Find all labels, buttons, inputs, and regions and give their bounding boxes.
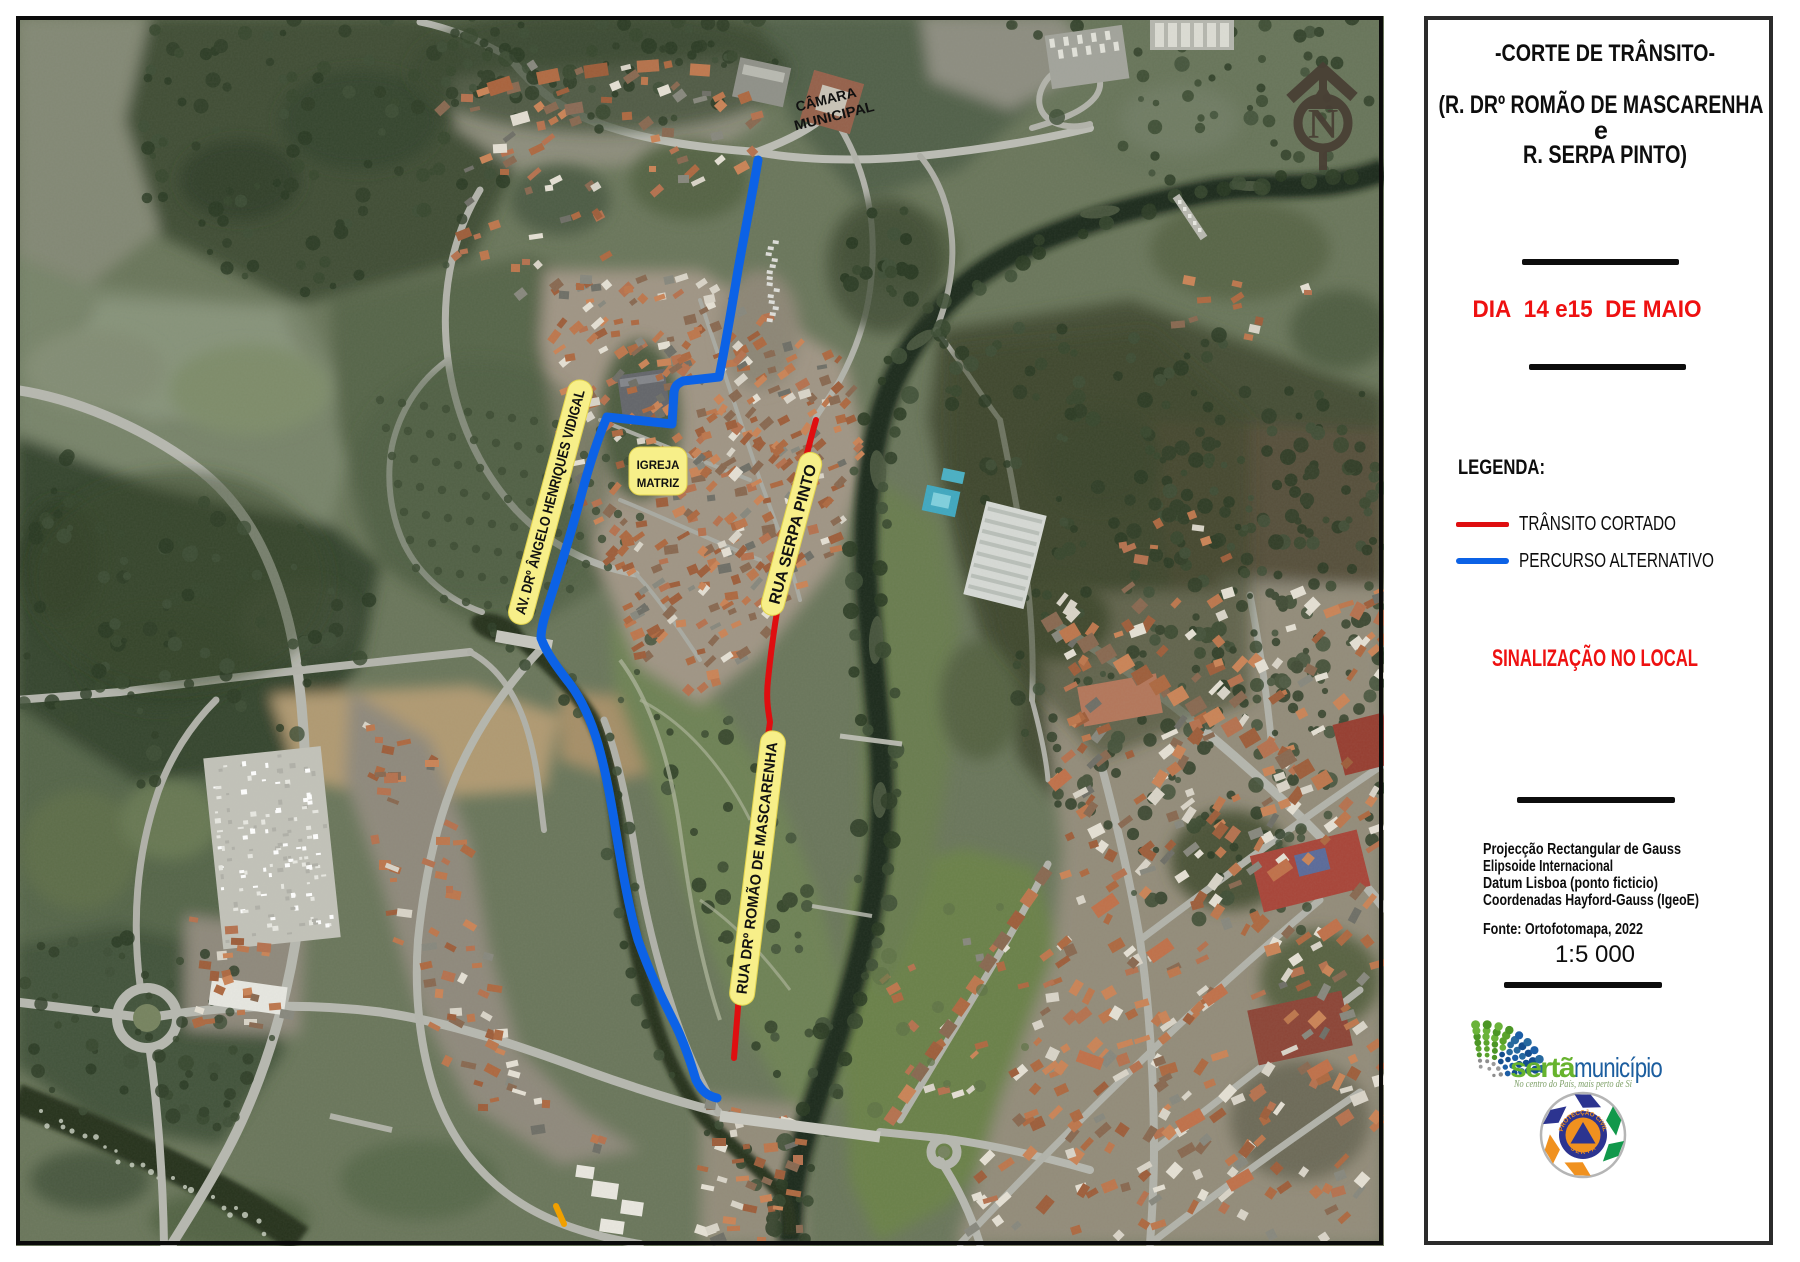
svg-text:Datum Lisboa (ponto ficticio): Datum Lisboa (ponto ficticio) bbox=[1483, 875, 1658, 892]
svg-text:(R. DRº ROMÃO DE MASCARENHA: (R. DRº ROMÃO DE MASCARENHA bbox=[1439, 89, 1764, 119]
svg-text:Coordenadas Hayford-Gauss (Ige: Coordenadas Hayford-Gauss (IgeoE) bbox=[1483, 892, 1699, 909]
svg-text:PERCURSO ALTERNATIVO: PERCURSO ALTERNATIVO bbox=[1519, 550, 1714, 572]
svg-text:-CORTE DE TRÂNSITO-: -CORTE DE TRÂNSITO- bbox=[1495, 39, 1715, 67]
svg-text:SINALIZAÇÃO NO LOCAL: SINALIZAÇÃO NO LOCAL bbox=[1492, 644, 1698, 672]
svg-text:TRÂNSITO CORTADO: TRÂNSITO CORTADO bbox=[1519, 512, 1676, 535]
svg-text:1:5 000: 1:5 000 bbox=[1555, 941, 1635, 968]
svg-text:Fonte: Ortofotomapa, 2022: Fonte: Ortofotomapa, 2022 bbox=[1483, 921, 1643, 938]
svg-text:Elipsoide Internacional: Elipsoide Internacional bbox=[1483, 858, 1613, 875]
svg-text:R. SERPA PINTO): R. SERPA PINTO) bbox=[1523, 141, 1687, 169]
svg-text:Projecção Rectangular de Gauss: Projecção Rectangular de Gauss bbox=[1483, 841, 1681, 858]
svg-text:DIA 14 e15 DE MAIO: DIA 14 e15 DE MAIO bbox=[1473, 296, 1702, 323]
svg-text:LEGENDA:: LEGENDA: bbox=[1458, 456, 1545, 479]
svg-text:No centro do País, mais perto: No centro do País, mais perto de Si bbox=[1513, 1079, 1632, 1090]
